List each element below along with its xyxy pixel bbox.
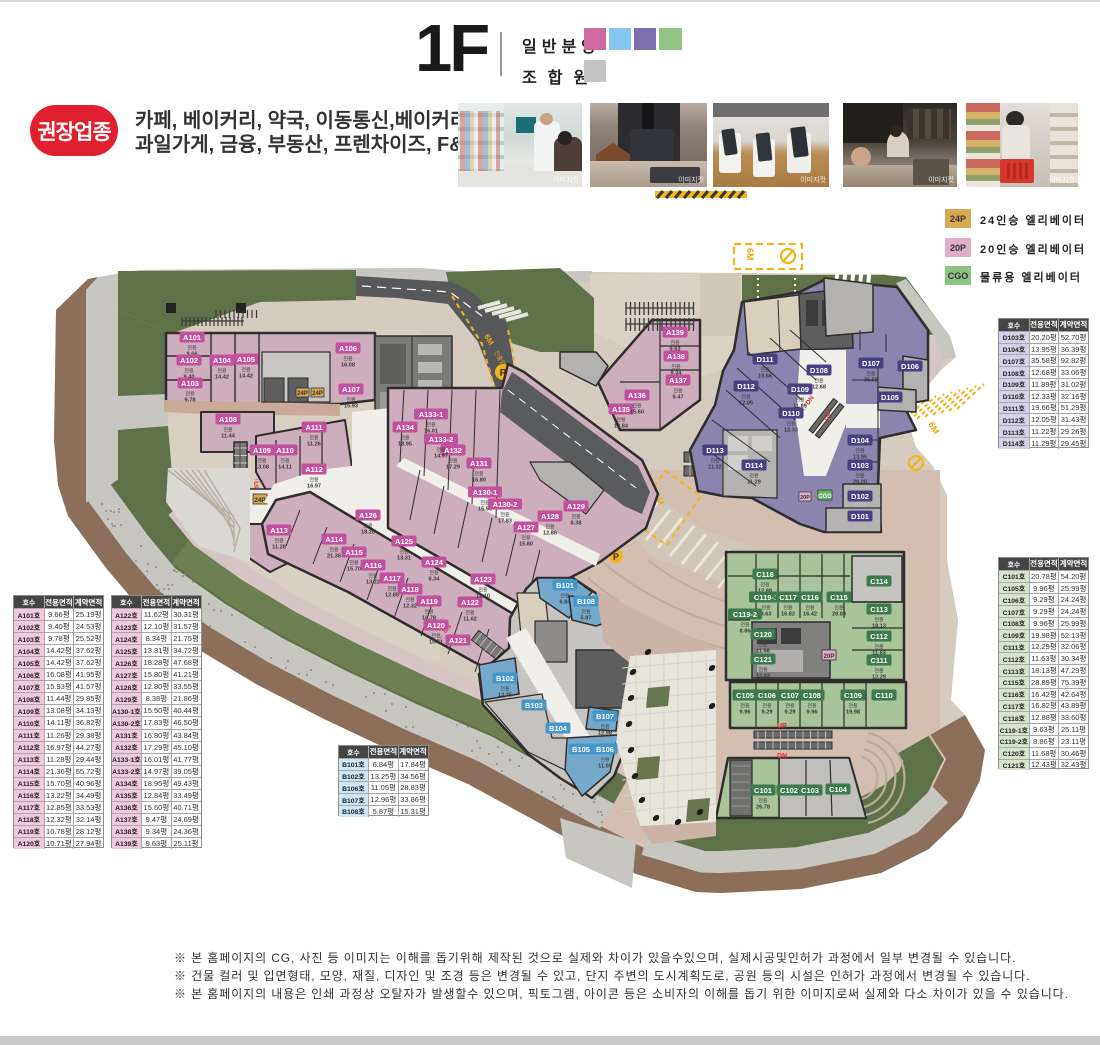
svg-text:전용: 전용 (632, 403, 642, 410)
svg-text:12.68: 12.68 (812, 385, 826, 391)
svg-text:A115: A115 (345, 548, 363, 557)
svg-text:전용: 전용 (343, 356, 353, 363)
svg-text:20P: 20P (824, 654, 835, 660)
svg-text:A118: A118 (401, 585, 419, 594)
svg-text:C106: C106 (758, 691, 776, 700)
svg-text:9.63: 9.63 (670, 347, 681, 353)
svg-text:B107: B107 (596, 712, 614, 721)
svg-text:전용: 전용 (465, 610, 475, 617)
svg-text:B104: B104 (549, 724, 568, 733)
svg-text:전용: 전용 (874, 644, 884, 651)
svg-text:11.22: 11.22 (708, 465, 722, 471)
svg-text:D106: D106 (901, 362, 919, 371)
svg-text:전용: 전용 (600, 724, 610, 731)
svg-text:전용: 전용 (814, 378, 824, 385)
svg-text:전용: 전용 (874, 617, 884, 624)
svg-text:전용: 전용 (740, 622, 750, 629)
svg-text:A108: A108 (219, 415, 237, 424)
svg-text:A123: A123 (474, 575, 492, 584)
svg-text:11.62: 11.62 (463, 617, 477, 623)
svg-text:12.33: 12.33 (784, 428, 798, 434)
svg-text:D102: D102 (851, 492, 869, 501)
svg-text:11.05: 11.05 (598, 764, 612, 770)
svg-text:16.42: 16.42 (803, 612, 817, 618)
svg-text:D103: D103 (851, 461, 869, 470)
svg-text:26.78: 26.78 (756, 805, 770, 811)
svg-text:A109: A109 (253, 446, 271, 455)
svg-text:전용: 전용 (223, 427, 233, 434)
svg-text:A133-2: A133-2 (429, 435, 454, 444)
svg-text:C105: C105 (736, 691, 754, 700)
svg-text:P: P (613, 552, 619, 562)
svg-text:전용: 전용 (280, 458, 290, 465)
svg-text:전용: 전용 (436, 447, 446, 454)
svg-text:A131: A131 (470, 459, 488, 468)
svg-text:A120: A120 (427, 621, 445, 630)
svg-text:9.96: 9.96 (807, 710, 818, 716)
svg-text:전용: 전용 (616, 417, 626, 424)
svg-text:12.85: 12.85 (385, 593, 399, 599)
svg-text:C102: C102 (780, 786, 798, 795)
svg-text:전용: 전용 (387, 586, 397, 593)
svg-text:19.98: 19.98 (846, 710, 860, 716)
svg-text:B101: B101 (556, 581, 574, 590)
svg-text:전용: 전용 (848, 703, 858, 710)
svg-text:전용: 전용 (740, 703, 750, 710)
svg-text:전용: 전용 (673, 388, 683, 395)
svg-text:9.78: 9.78 (185, 398, 196, 404)
svg-text:A113: A113 (270, 526, 288, 535)
svg-text:18.28: 18.28 (361, 530, 375, 536)
svg-text:12.43: 12.43 (756, 674, 770, 680)
svg-text:전용: 전용 (478, 587, 488, 594)
svg-text:전용: 전용 (431, 633, 441, 640)
svg-text:전용: 전용 (184, 368, 194, 375)
svg-text:전용: 전용 (429, 570, 439, 577)
svg-text:전용: 전용 (560, 593, 570, 600)
svg-text:전용: 전용 (760, 582, 770, 589)
svg-text:A128: A128 (541, 512, 559, 521)
svg-text:전용: 전용 (760, 367, 770, 374)
svg-text:A130-1: A130-1 (473, 488, 498, 497)
svg-text:19.66: 19.66 (758, 374, 772, 380)
svg-text:16.82: 16.82 (781, 612, 795, 618)
svg-text:D114: D114 (745, 461, 763, 470)
svg-text:전용: 전용 (834, 605, 844, 612)
svg-text:9.96: 9.96 (740, 710, 751, 716)
svg-text:A136: A136 (628, 391, 646, 400)
svg-text:8.34: 8.34 (429, 577, 441, 583)
svg-text:20P: 20P (800, 495, 810, 501)
svg-text:A125: A125 (395, 537, 413, 546)
svg-text:C114: C114 (870, 577, 888, 586)
svg-text:C112: C112 (870, 632, 888, 641)
svg-text:전용: 전용 (758, 798, 768, 805)
svg-text:16.08: 16.08 (341, 363, 355, 369)
svg-text:전용: 전용 (309, 435, 319, 442)
svg-text:13.31: 13.31 (397, 556, 411, 562)
svg-text:12.05: 12.05 (739, 401, 753, 407)
svg-text:12.10: 12.10 (476, 594, 490, 600)
svg-text:24P: 24P (297, 391, 308, 397)
svg-text:A103: A103 (181, 379, 199, 388)
svg-text:8.38: 8.38 (571, 521, 582, 527)
svg-text:B103: B103 (525, 701, 543, 710)
svg-text:전용: 전용 (805, 605, 815, 612)
svg-text:C107: C107 (781, 691, 799, 700)
svg-text:C101: C101 (754, 786, 772, 795)
svg-text:A102: A102 (180, 356, 198, 365)
svg-text:D113: D113 (706, 446, 724, 455)
svg-text:12.98: 12.98 (598, 731, 612, 737)
svg-text:전용: 전용 (866, 371, 876, 378)
svg-text:14.97: 14.97 (434, 454, 448, 460)
svg-text:전용: 전용 (363, 523, 373, 530)
svg-text:28.89: 28.89 (832, 612, 846, 618)
svg-text:전용: 전용 (545, 524, 555, 531)
svg-text:전용: 전용 (349, 560, 359, 567)
svg-text:전용: 전용 (783, 605, 793, 612)
svg-text:CGO: CGO (818, 494, 832, 500)
svg-text:전용: 전용 (426, 422, 436, 429)
svg-text:D105: D105 (881, 393, 899, 402)
svg-text:11.26: 11.26 (307, 442, 321, 448)
svg-text:5.87: 5.87 (581, 616, 592, 622)
svg-text:6M: 6M (745, 248, 755, 261)
svg-text:15.93: 15.93 (344, 404, 358, 410)
svg-text:6M: 6M (926, 420, 941, 436)
svg-text:6.84: 6.84 (560, 600, 572, 606)
svg-text:C103: C103 (801, 786, 819, 795)
svg-text:24P: 24P (312, 391, 323, 397)
svg-text:16.97: 16.97 (307, 484, 321, 490)
svg-text:전용: 전용 (710, 458, 720, 465)
svg-text:전용: 전용 (399, 549, 409, 556)
svg-text:B105: B105 (572, 745, 590, 754)
svg-text:14.11: 14.11 (278, 465, 292, 471)
svg-text:C121: C121 (754, 655, 772, 664)
svg-text:전용: 전용 (807, 703, 817, 710)
svg-text:A139: A139 (666, 328, 684, 337)
svg-text:전용: 전용 (758, 642, 768, 649)
svg-text:전용: 전용 (785, 703, 795, 710)
svg-text:전용: 전용 (346, 397, 356, 404)
svg-text:14.42: 14.42 (239, 374, 253, 380)
svg-text:A124: A124 (425, 558, 444, 567)
svg-text:A130-2: A130-2 (493, 500, 518, 509)
svg-text:15.70: 15.70 (347, 567, 361, 573)
svg-text:전용: 전용 (405, 597, 415, 604)
svg-text:8.86: 8.86 (740, 629, 751, 635)
svg-text:A126: A126 (359, 511, 377, 520)
svg-text:D101: D101 (851, 512, 869, 521)
svg-text:9.34: 9.34 (671, 371, 683, 377)
svg-text:C119-2: C119-2 (733, 610, 757, 619)
svg-text:C115: C115 (830, 593, 848, 602)
svg-text:9.47: 9.47 (673, 395, 684, 401)
svg-text:C111: C111 (870, 656, 887, 665)
svg-text:전용: 전용 (257, 458, 267, 465)
svg-text:전용: 전용 (741, 394, 751, 401)
svg-text:C118: C118 (756, 570, 774, 579)
svg-text:전용: 전용 (855, 473, 865, 480)
svg-text:C108: C108 (803, 691, 821, 700)
svg-text:9.29: 9.29 (785, 710, 796, 716)
svg-text:15.60: 15.60 (630, 410, 644, 416)
svg-text:17.83: 17.83 (498, 519, 512, 525)
svg-text:전용: 전용 (329, 547, 339, 554)
svg-text:D109: D109 (791, 385, 809, 394)
svg-text:A134: A134 (396, 423, 415, 432)
svg-text:12.86: 12.86 (543, 531, 557, 537)
svg-text:전용: 전용 (241, 367, 251, 374)
svg-text:A129: A129 (567, 502, 585, 511)
svg-text:12.84: 12.84 (614, 424, 629, 430)
svg-text:전용: 전용 (671, 364, 681, 371)
svg-text:11.28: 11.28 (272, 545, 286, 551)
svg-text:전용: 전용 (424, 609, 434, 616)
svg-text:C120: C120 (754, 630, 772, 639)
svg-text:전용: 전용 (762, 703, 772, 710)
svg-text:A105: A105 (237, 355, 255, 364)
svg-text:A114: A114 (325, 535, 343, 544)
svg-text:전용: 전용 (500, 512, 510, 519)
svg-text:전용: 전용 (786, 421, 796, 428)
svg-text:전용: 전용 (521, 535, 531, 542)
svg-text:→ DN: → DN (768, 753, 787, 760)
svg-text:D111: D111 (756, 355, 773, 364)
svg-text:18.13: 18.13 (872, 624, 886, 630)
svg-text:전용: 전용 (500, 686, 510, 693)
svg-text:A117: A117 (383, 574, 401, 583)
svg-text:← UP: ← UP (768, 723, 787, 730)
svg-text:C116: C116 (801, 593, 819, 602)
svg-text:B106: B106 (596, 745, 614, 754)
svg-text:전용: 전용 (187, 345, 197, 352)
svg-text:전용: 전용 (874, 668, 884, 675)
svg-text:전용: 전용 (217, 368, 227, 375)
svg-text:전용: 전용 (670, 340, 680, 347)
svg-text:A137: A137 (669, 376, 687, 385)
svg-text:전용: 전용 (368, 573, 378, 580)
svg-text:A112: A112 (305, 465, 323, 474)
svg-text:20.20: 20.20 (853, 480, 867, 486)
svg-text:전용: 전용 (571, 514, 581, 521)
svg-text:전용: 전용 (795, 397, 805, 404)
svg-text:A127: A127 (517, 523, 535, 532)
svg-text:9.29: 9.29 (762, 710, 773, 716)
svg-text:24P: 24P (254, 497, 266, 504)
svg-text:15.80: 15.80 (519, 542, 533, 548)
svg-text:C113: C113 (870, 605, 888, 614)
svg-text:D107: D107 (862, 359, 880, 368)
svg-text:C109: C109 (844, 691, 862, 700)
svg-text:전용: 전용 (448, 458, 458, 465)
svg-text:16.80: 16.80 (472, 478, 486, 484)
svg-text:A116: A116 (364, 561, 382, 570)
svg-text:11.29: 11.29 (747, 480, 761, 486)
svg-text:전용: 전용 (758, 667, 768, 674)
svg-text:전용: 전용 (749, 473, 759, 480)
svg-text:B108: B108 (577, 597, 595, 606)
svg-text:D110: D110 (782, 409, 800, 418)
svg-text:11.44: 11.44 (221, 434, 236, 440)
svg-text:전용: 전용 (581, 609, 591, 616)
svg-text:13.22: 13.22 (366, 580, 380, 586)
svg-text:D108: D108 (810, 366, 828, 375)
svg-text:C117: C117 (779, 593, 797, 602)
svg-text:13.25: 13.25 (498, 693, 512, 699)
svg-text:A107: A107 (342, 385, 360, 394)
svg-text:A121: A121 (449, 636, 467, 645)
svg-text:전용: 전용 (474, 471, 484, 478)
svg-text:13.08: 13.08 (255, 465, 269, 471)
svg-text:10.71: 10.71 (429, 640, 443, 646)
svg-text:14.42: 14.42 (215, 375, 229, 381)
svg-text:17.29: 17.29 (446, 465, 460, 471)
svg-text:A138: A138 (667, 352, 685, 361)
svg-text:전용: 전용 (600, 757, 610, 764)
svg-text:C104: C104 (829, 785, 848, 794)
svg-text:C119-1: C119-1 (754, 593, 778, 602)
svg-text:9.63: 9.63 (761, 612, 772, 618)
svg-text:A135: A135 (612, 405, 630, 414)
svg-text:A133-1: A133-1 (419, 410, 444, 419)
svg-text:A110: A110 (276, 446, 294, 455)
svg-text:D112: D112 (737, 382, 755, 391)
svg-text:A111: A111 (305, 423, 322, 432)
svg-text:D104: D104 (851, 436, 870, 445)
svg-text:12.32: 12.32 (403, 604, 417, 610)
svg-text:21.36: 21.36 (327, 554, 341, 560)
svg-text:A101: A101 (183, 333, 201, 342)
svg-text:12.29: 12.29 (872, 675, 886, 681)
svg-text:A119: A119 (420, 597, 438, 606)
svg-text:35.58: 35.58 (864, 378, 878, 384)
svg-text:전용: 전용 (309, 477, 319, 484)
svg-text:전용: 전용 (185, 391, 195, 398)
svg-text:전용: 전용 (400, 435, 410, 442)
svg-text:18.95: 18.95 (398, 442, 412, 448)
svg-text:C110: C110 (875, 691, 893, 700)
svg-text:전용: 전용 (855, 448, 865, 455)
svg-text:전용: 전용 (761, 605, 771, 612)
svg-text:A104: A104 (213, 356, 232, 365)
svg-text:전용: 전용 (274, 538, 284, 545)
svg-text:B102: B102 (496, 674, 514, 683)
svg-text:A106: A106 (339, 344, 357, 353)
